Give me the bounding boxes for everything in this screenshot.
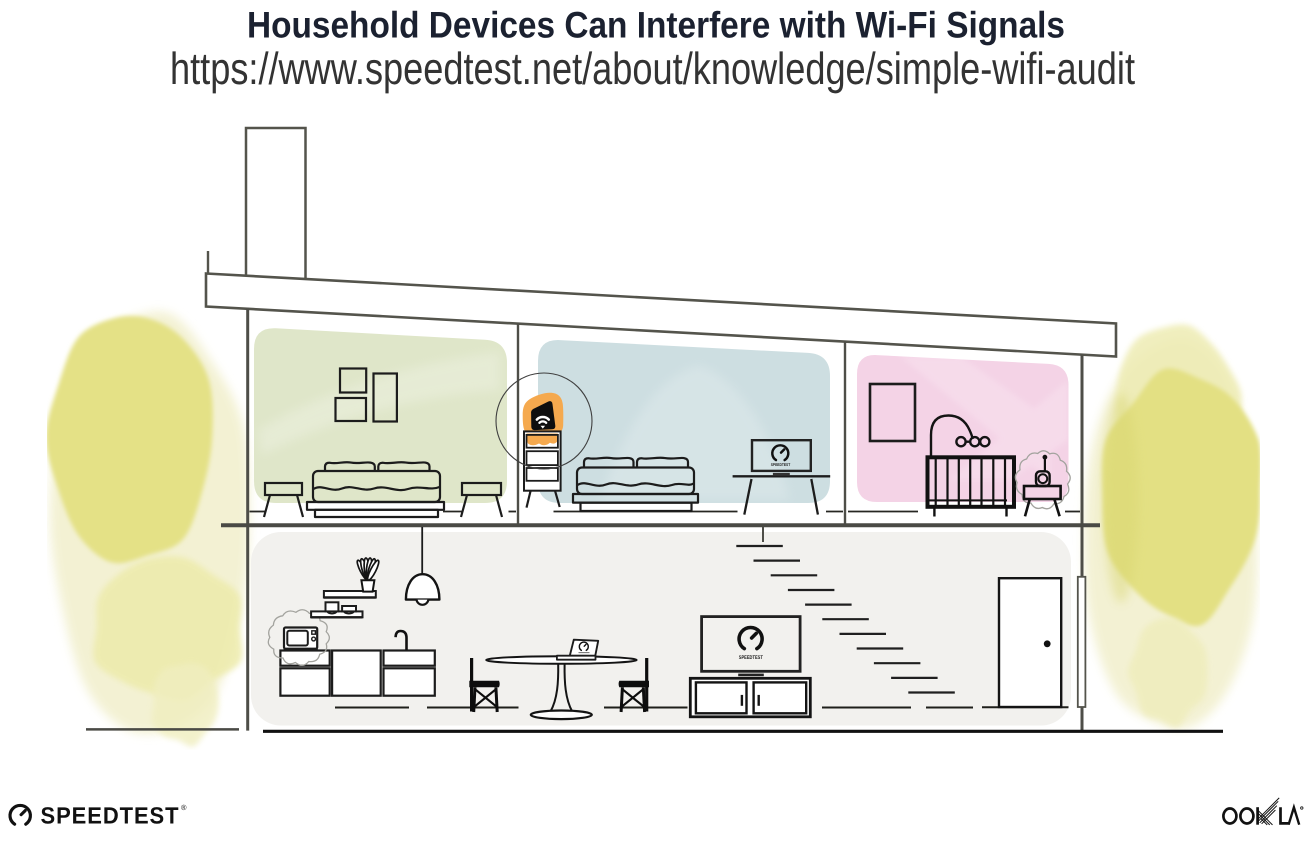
svg-text:SPEEDTEST: SPEEDTEST	[739, 655, 764, 661]
svg-text:https://www.speedtest.net/abou: https://www.speedtest.net/about/knowledg…	[170, 43, 1135, 94]
svg-text:Household Devices Can Interfer: Household Devices Can Interfere with Wi-…	[247, 5, 1065, 46]
svg-text:SPEEDTEST: SPEEDTEST	[41, 803, 180, 829]
svg-text:®: ®	[181, 803, 187, 812]
svg-text:SPEEDTEST: SPEEDTEST	[771, 462, 791, 467]
